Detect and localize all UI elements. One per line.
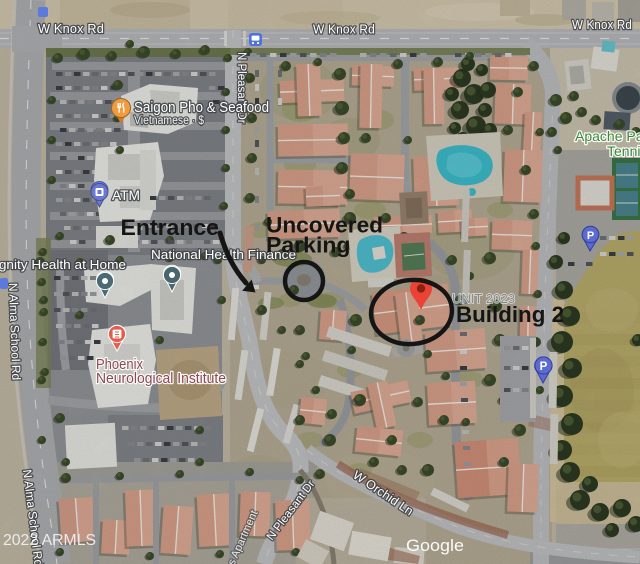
svg-text:Tennis: Tennis — [607, 143, 640, 159]
svg-text:Apache Park: Apache Park — [575, 128, 640, 144]
svg-text:W Knox Rd: W Knox Rd — [572, 18, 632, 32]
svg-text:P: P — [540, 361, 548, 373]
svg-text:Vietnamese · $: Vietnamese · $ — [134, 115, 205, 127]
svg-text:Entrance: Entrance — [121, 215, 220, 240]
svg-text:W Knox Rd: W Knox Rd — [38, 22, 104, 36]
svg-text:W Knox Rd: W Knox Rd — [313, 23, 375, 37]
svg-text:Parking: Parking — [266, 233, 351, 258]
svg-text:2022 ARMLS: 2022 ARMLS — [3, 532, 96, 549]
svg-text:Saigon Pho & Seafood: Saigon Pho & Seafood — [134, 100, 269, 116]
svg-text:Building 2: Building 2 — [456, 302, 564, 327]
svg-text:ATM: ATM — [112, 188, 140, 203]
svg-text:Neurological Institute: Neurological Institute — [96, 371, 226, 387]
svg-text:Google: Google — [406, 536, 464, 555]
svg-text:P: P — [587, 230, 594, 242]
svg-text:Dignity Health at Home: Dignity Health at Home — [0, 257, 126, 272]
